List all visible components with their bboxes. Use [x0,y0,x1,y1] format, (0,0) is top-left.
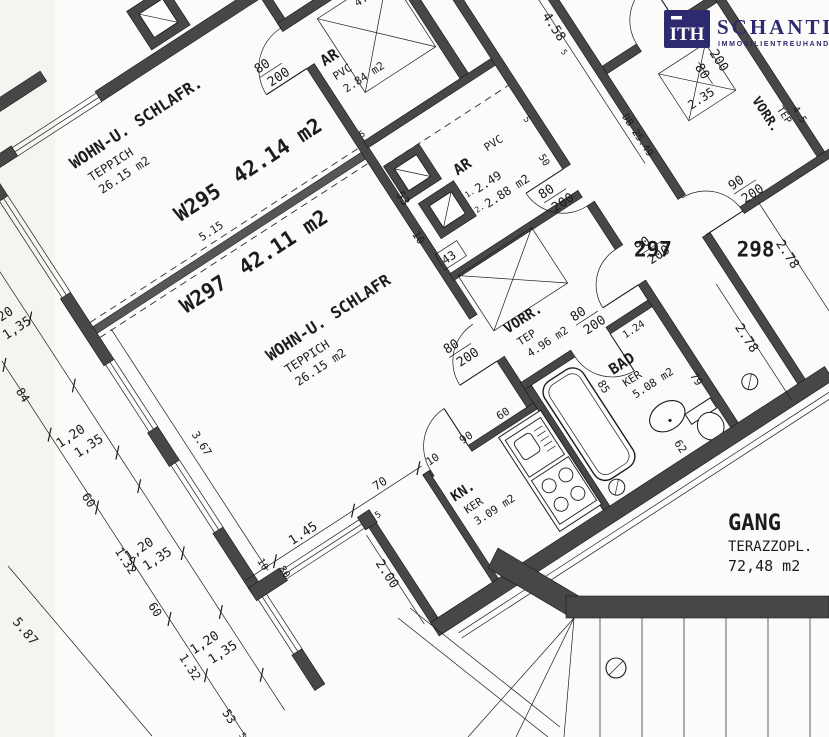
gang-area: 72,48 m2 [728,557,800,575]
logo-mark-bar [671,16,682,20]
gang-title: GANG [728,511,781,536]
floorplan-page: WOHN-U. SCHLAFR. TEPPICH 26.15 m2 W295 4… [0,0,829,737]
apt-number-298: 298 [737,238,775,262]
logo-tagline: IMMOBILIENTREUHAND [718,41,829,48]
logo-name: SCHANTL [717,15,829,39]
floor-drain [606,658,626,678]
floorplan-drawing: WOHN-U. SCHLAFR. TEPPICH 26.15 m2 W295 4… [0,0,829,737]
logo-mark-text: ITH [670,24,705,45]
stair-horizontal-wall [566,596,829,618]
schantl-logo: ITH SCHANTL IMMOBILIENTREUHAND [664,10,829,48]
gang-floor: TERAZZOPL. [728,539,812,555]
